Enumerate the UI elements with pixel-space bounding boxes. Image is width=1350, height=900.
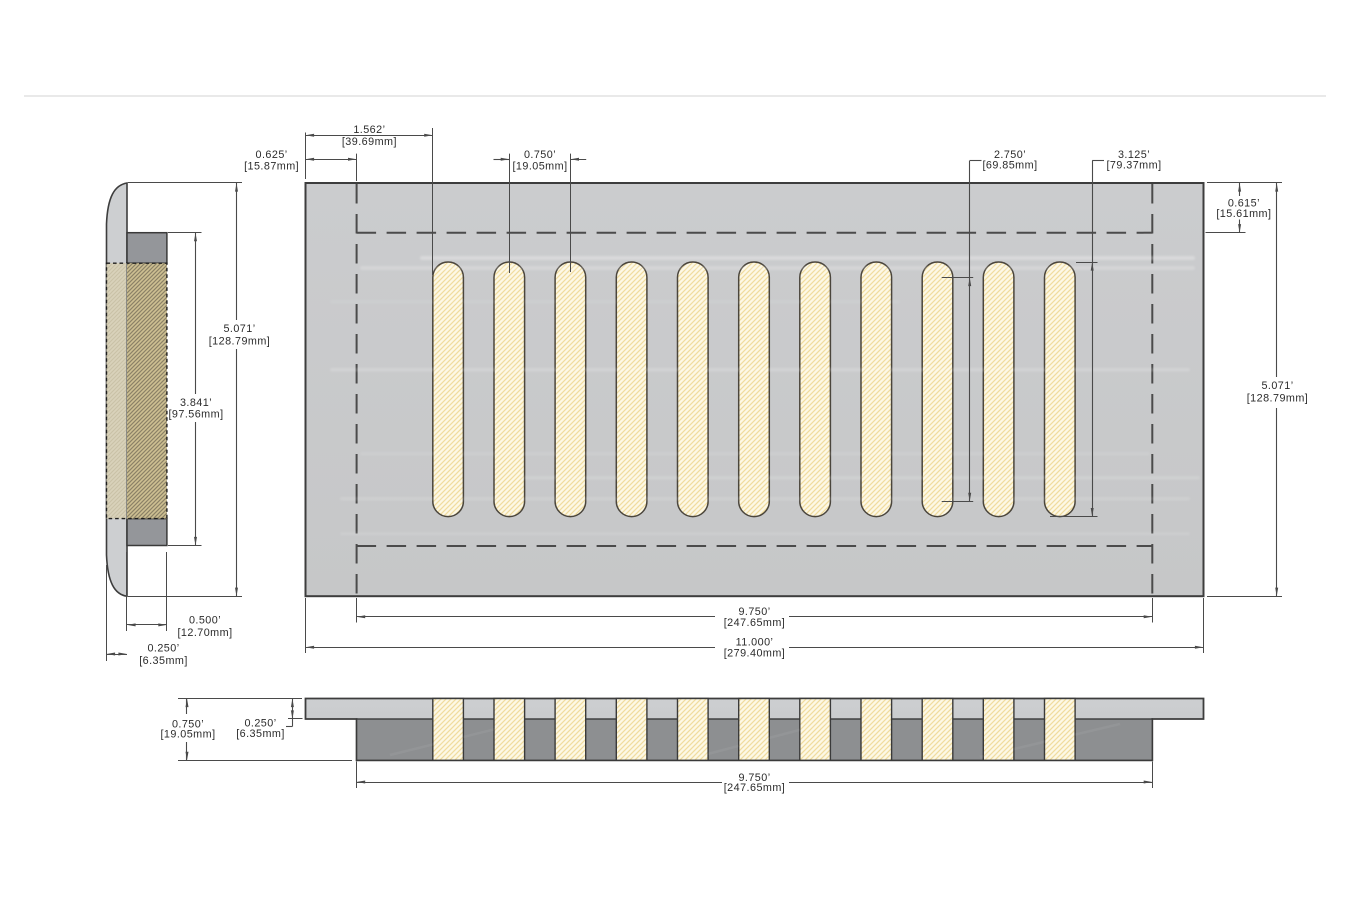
svg-text:[79.37mm]: [79.37mm] [1106, 160, 1161, 172]
svg-text:1.562’: 1.562’ [353, 124, 385, 136]
svg-text:[247.65mm]: [247.65mm] [724, 782, 786, 794]
svg-text:[97.56mm]: [97.56mm] [168, 408, 223, 420]
svg-text:5.071’: 5.071’ [1261, 380, 1293, 392]
svg-text:[128.79mm]: [128.79mm] [209, 336, 271, 348]
svg-text:[128.79mm]: [128.79mm] [1247, 393, 1309, 405]
svg-text:[6.35mm]: [6.35mm] [236, 728, 285, 740]
svg-text:[19.05mm]: [19.05mm] [512, 160, 567, 172]
svg-text:[15.87mm]: [15.87mm] [244, 160, 299, 172]
svg-text:[19.05mm]: [19.05mm] [160, 728, 215, 740]
svg-text:[12.70mm]: [12.70mm] [177, 627, 232, 639]
svg-text:0.750’: 0.750’ [524, 149, 556, 161]
svg-text:0.625’: 0.625’ [256, 149, 288, 161]
svg-text:[39.69mm]: [39.69mm] [342, 136, 397, 148]
svg-text:[69.85mm]: [69.85mm] [982, 160, 1037, 172]
svg-text:[247.65mm]: [247.65mm] [724, 617, 786, 629]
svg-text:[15.61mm]: [15.61mm] [1216, 208, 1271, 220]
svg-text:[279.40mm]: [279.40mm] [724, 647, 786, 659]
svg-text:0.250’: 0.250’ [147, 643, 179, 655]
svg-text:3.841’: 3.841’ [180, 397, 212, 409]
svg-text:0.500’: 0.500’ [189, 614, 221, 626]
svg-text:5.071’: 5.071’ [223, 323, 255, 335]
svg-text:[6.35mm]: [6.35mm] [139, 655, 188, 667]
